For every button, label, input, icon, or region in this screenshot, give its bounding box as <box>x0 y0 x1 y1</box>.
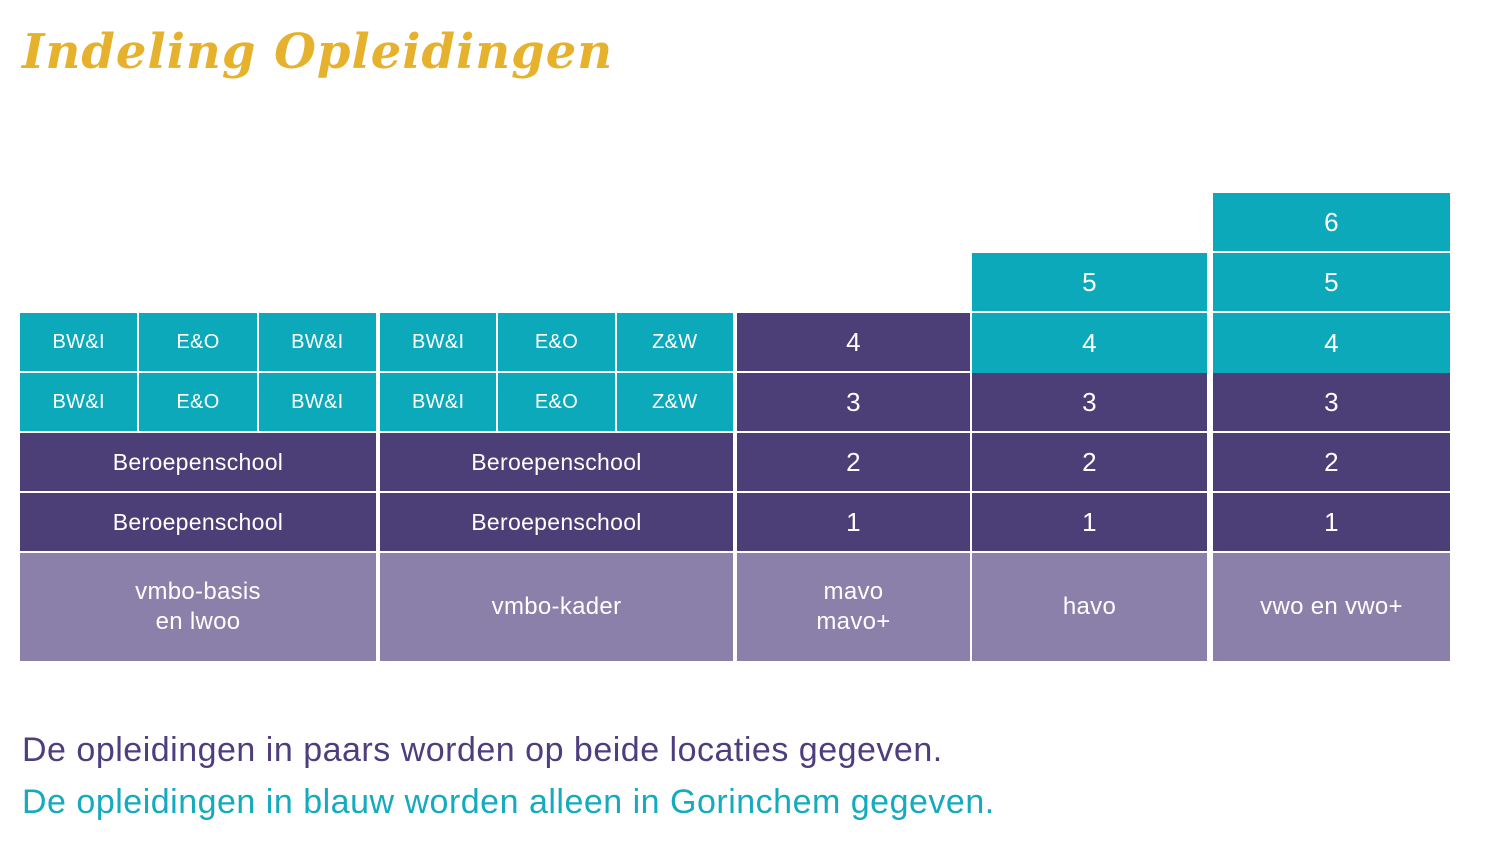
program-cell: E&O <box>498 373 614 431</box>
beroepenschool-cell: Beroepenschool <box>20 433 376 491</box>
program-cell: BW&I <box>20 313 137 371</box>
program-cell: BW&I <box>380 373 496 431</box>
year-cell: 1 <box>737 493 970 551</box>
program-cell: Z&W <box>617 373 733 431</box>
track-label-line: vwo en vwo+ <box>1260 592 1403 622</box>
legend-notes: De opleidingen in paars worden op beide … <box>22 724 995 828</box>
program-cell: BW&I <box>20 373 137 431</box>
beroepenschool-cell: Beroepenschool <box>380 493 733 551</box>
year-cell: 1 <box>1213 493 1450 551</box>
year-cell: 2 <box>1213 433 1450 491</box>
track-label-havo: havo <box>972 553 1207 661</box>
row-level-3: BW&I E&O BW&I <box>20 373 376 431</box>
program-cell: E&O <box>139 313 256 371</box>
year-cell: 5 <box>972 253 1207 311</box>
year-cell: 1 <box>972 493 1207 551</box>
track-label-mavo: mavo mavo+ <box>737 553 970 661</box>
column-vmbo-basis: BW&I E&O BW&I BW&I E&O BW&I Beroepenscho… <box>20 313 376 661</box>
track-label-line: mavo+ <box>816 607 890 637</box>
column-vwo: 6 5 4 3 2 1 vwo en vwo+ <box>1213 193 1450 661</box>
note-purple-locations: De opleidingen in paars worden op beide … <box>22 724 995 776</box>
program-cell: Z&W <box>617 313 733 371</box>
track-label-vmbo-basis: vmbo-basis en lwoo <box>20 553 376 661</box>
track-label-line: en lwoo <box>156 607 241 637</box>
year-cell: 3 <box>1213 373 1450 431</box>
program-cell: E&O <box>498 313 614 371</box>
track-label-line: vmbo-basis <box>135 577 261 607</box>
column-mavo: 4 3 2 1 mavo mavo+ <box>737 313 970 661</box>
track-label-line: vmbo-kader <box>492 592 622 622</box>
track-label-line: havo <box>1063 592 1116 622</box>
year-cell: 2 <box>972 433 1207 491</box>
year-cell: 4 <box>1213 313 1450 373</box>
row-level-4: BW&I E&O BW&I <box>20 313 376 371</box>
program-cell: BW&I <box>259 373 376 431</box>
beroepenschool-cell: Beroepenschool <box>380 433 733 491</box>
page-title: Indeling Opleidingen <box>22 22 613 82</box>
track-label-vmbo-kader: vmbo-kader <box>380 553 733 661</box>
track-label-vwo: vwo en vwo+ <box>1213 553 1450 661</box>
row-level-3: BW&I E&O Z&W <box>380 373 733 431</box>
year-cell: 6 <box>1213 193 1450 251</box>
row-level-4: BW&I E&O Z&W <box>380 313 733 371</box>
program-cell: BW&I <box>380 313 496 371</box>
year-cell: 3 <box>737 373 970 431</box>
page: Indeling Opleidingen BW&I E&O BW&I BW&I … <box>0 0 1500 844</box>
year-cell: 4 <box>737 313 970 371</box>
year-cell: 2 <box>737 433 970 491</box>
year-cell: 4 <box>972 313 1207 373</box>
year-cell: 5 <box>1213 253 1450 311</box>
education-structure-diagram: BW&I E&O BW&I BW&I E&O BW&I Beroepenscho… <box>20 193 1450 661</box>
column-vmbo-kader: BW&I E&O Z&W BW&I E&O Z&W Beroepenschool… <box>380 313 733 661</box>
beroepenschool-cell: Beroepenschool <box>20 493 376 551</box>
note-teal-gorinchem: De opleidingen in blauw worden alleen in… <box>22 776 995 828</box>
column-havo: 5 4 3 2 1 havo <box>972 253 1207 661</box>
program-cell: E&O <box>139 373 256 431</box>
track-label-line: mavo <box>824 577 884 607</box>
year-cell: 3 <box>972 373 1207 431</box>
program-cell: BW&I <box>259 313 376 371</box>
